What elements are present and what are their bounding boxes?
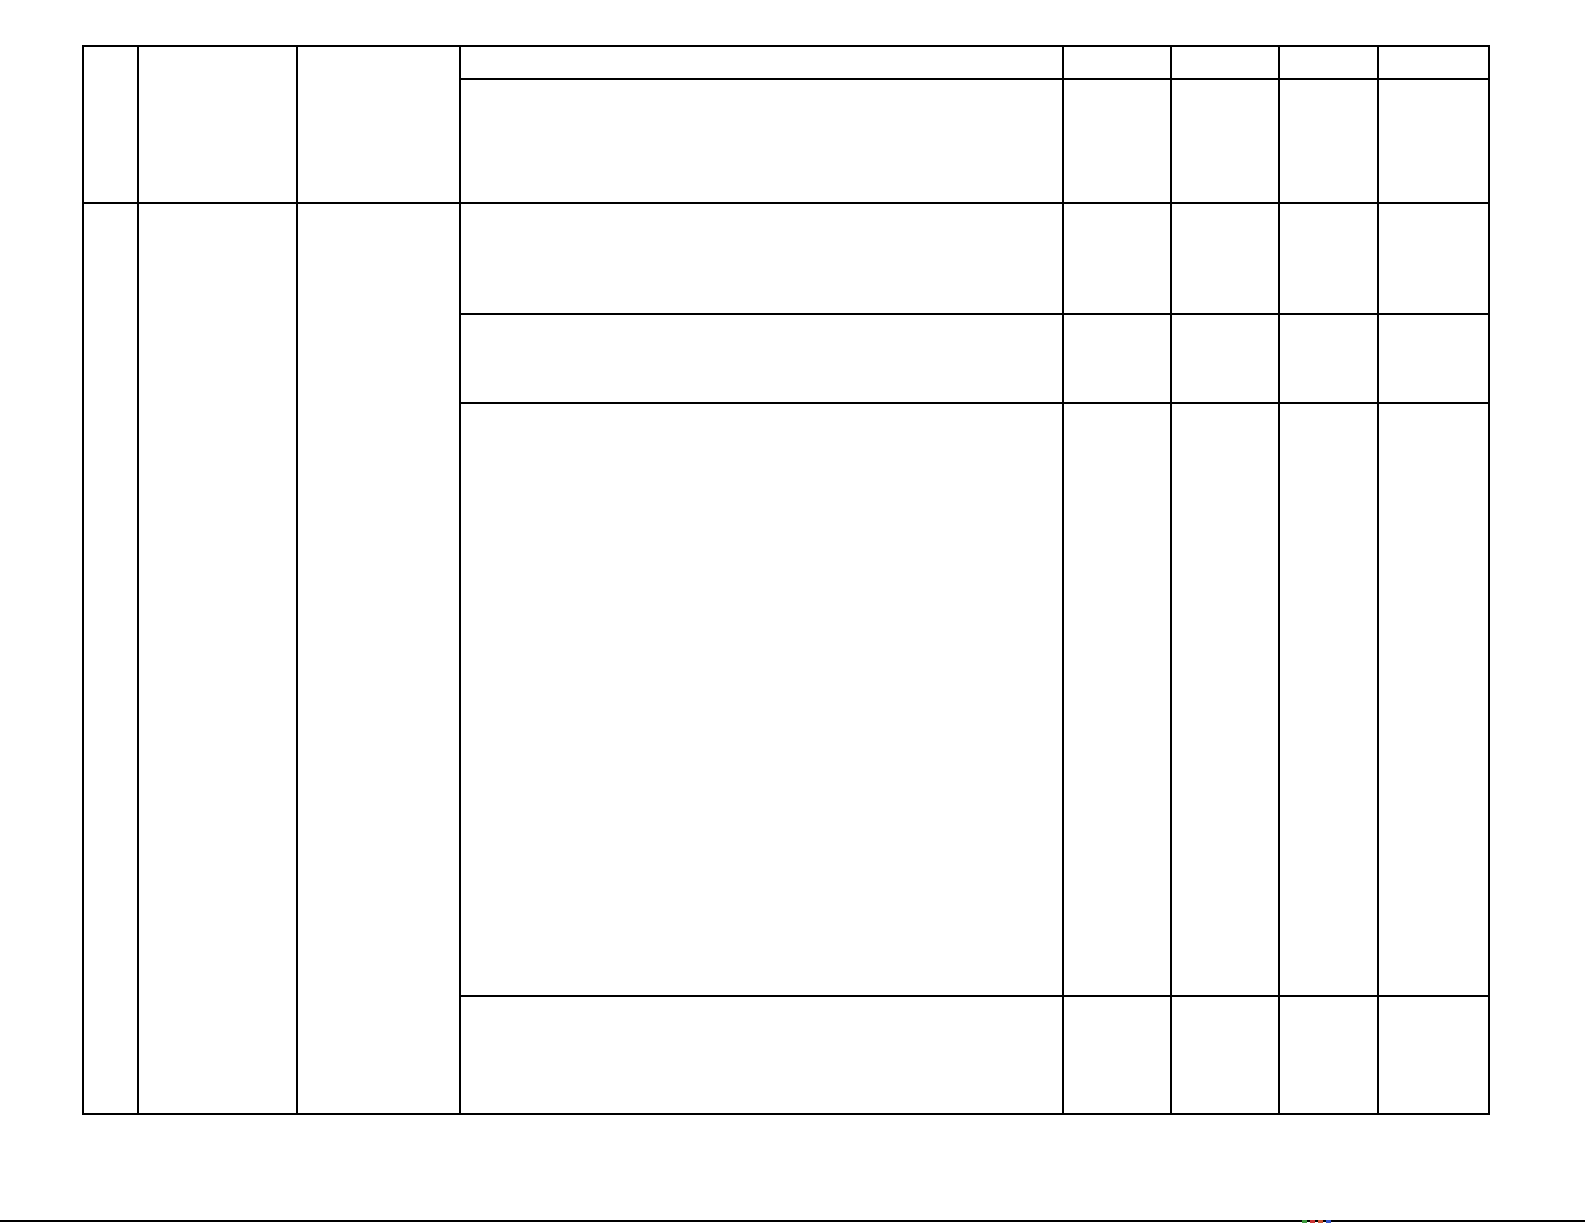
- table-cell-c6-r3[interactable]: [1170, 202, 1280, 315]
- footer-rule-mark-2: [1310, 1220, 1315, 1223]
- table-cell-c8-r2[interactable]: [1377, 78, 1490, 204]
- table-cell-c2-r1r2[interactable]: [137, 45, 298, 204]
- table-cell-c7-r5[interactable]: [1278, 402, 1379, 997]
- table-cell-c8-r4[interactable]: [1377, 313, 1490, 404]
- table-cell-c6-r2[interactable]: [1170, 78, 1280, 204]
- table-cell-c6-r6[interactable]: [1170, 995, 1280, 1115]
- table-cell-c6-r5[interactable]: [1170, 402, 1280, 997]
- table-cell-c4-r2[interactable]: [459, 78, 1064, 204]
- footer-rule-mark-3: [1318, 1220, 1323, 1223]
- table-cell-c8-r1[interactable]: [1377, 45, 1490, 80]
- table-cell-c4-r1[interactable]: [459, 45, 1064, 80]
- table-cell-c4-r6[interactable]: [459, 995, 1064, 1115]
- table-cell-c8-r5[interactable]: [1377, 402, 1490, 997]
- table-cell-c5-r5[interactable]: [1062, 402, 1172, 997]
- table-cell-c4-r4[interactable]: [459, 313, 1064, 404]
- table-cell-c4-r3[interactable]: [459, 202, 1064, 315]
- table-cell-c7-r6[interactable]: [1278, 995, 1379, 1115]
- empty-table: [0, 0, 1585, 1225]
- table-cell-c5-r6[interactable]: [1062, 995, 1172, 1115]
- table-cell-c3-r3r6[interactable]: [296, 202, 461, 1115]
- table-cell-c7-r4[interactable]: [1278, 313, 1379, 404]
- table-cell-c5-r1[interactable]: [1062, 45, 1172, 80]
- table-cell-c1-r1r2[interactable]: [82, 45, 139, 204]
- table-cell-c1-r3r6[interactable]: [82, 202, 139, 1115]
- footer-rule: [0, 1220, 1585, 1222]
- document-page: [0, 0, 1585, 1225]
- table-cell-c5-r4[interactable]: [1062, 313, 1172, 404]
- footer-rule-mark-1: [1302, 1220, 1307, 1223]
- table-cell-c7-r2[interactable]: [1278, 78, 1379, 204]
- table-cell-c8-r3[interactable]: [1377, 202, 1490, 315]
- table-cell-c5-r3[interactable]: [1062, 202, 1172, 315]
- table-cell-c6-r4[interactable]: [1170, 313, 1280, 404]
- table-cell-c4-r5[interactable]: [459, 402, 1064, 997]
- table-cell-c7-r3[interactable]: [1278, 202, 1379, 315]
- footer-rule-mark-4: [1326, 1220, 1331, 1223]
- table-cell-c7-r1[interactable]: [1278, 45, 1379, 80]
- table-cell-c6-r1[interactable]: [1170, 45, 1280, 80]
- table-cell-c3-r1r2[interactable]: [296, 45, 461, 204]
- table-cell-c2-r3r6[interactable]: [137, 202, 298, 1115]
- table-cell-c8-r6[interactable]: [1377, 995, 1490, 1115]
- table-cell-c5-r2[interactable]: [1062, 78, 1172, 204]
